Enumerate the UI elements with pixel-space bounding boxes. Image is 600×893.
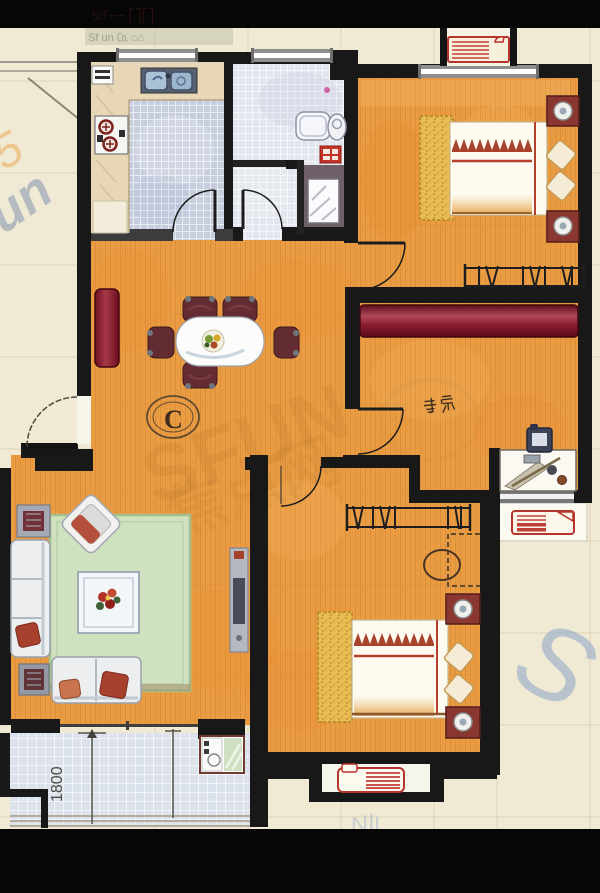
svg-text:C: C	[164, 405, 183, 434]
svg-text:5ℱ⌐⌐ ⎡⎤⎡⎤: 5ℱ⌐⌐ ⎡⎤⎡⎤	[92, 7, 154, 24]
svg-text:Sf un ㏇ ⌂⌂: Sf un ㏇ ⌂⌂	[88, 32, 144, 44]
svg-text:1800: 1800	[49, 766, 66, 802]
